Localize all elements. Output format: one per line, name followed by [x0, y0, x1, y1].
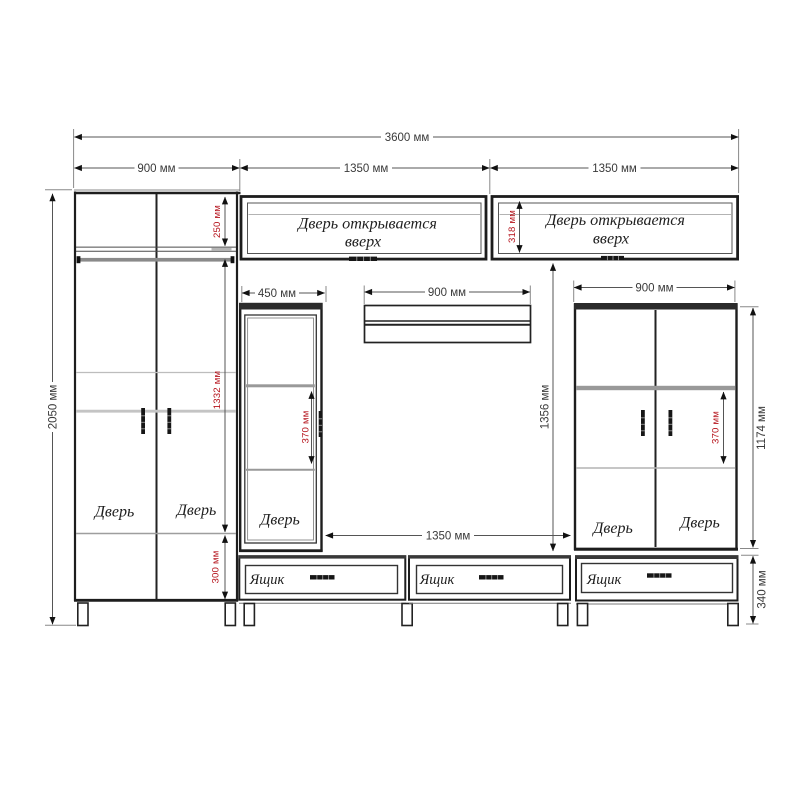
- svg-text:вверх: вверх: [345, 233, 382, 251]
- svg-text:370 мм: 370 мм: [711, 411, 722, 444]
- svg-text:318 мм: 318 мм: [507, 210, 518, 243]
- svg-text:1350 мм: 1350 мм: [592, 163, 637, 175]
- svg-text:3600 мм: 3600 мм: [385, 132, 430, 144]
- svg-text:Ящик: Ящик: [249, 572, 285, 588]
- svg-text:вверх: вверх: [593, 230, 630, 248]
- svg-text:Дверь: Дверь: [175, 502, 217, 519]
- svg-text:370 мм: 370 мм: [301, 410, 312, 443]
- svg-text:900 мм: 900 мм: [137, 163, 175, 175]
- svg-text:Дверь: Дверь: [258, 512, 300, 529]
- svg-text:1356 мм: 1356 мм: [540, 385, 552, 430]
- svg-text:Ящик: Ящик: [419, 572, 455, 588]
- svg-text:1174 мм: 1174 мм: [756, 406, 768, 450]
- svg-text:2050 мм: 2050 мм: [47, 385, 59, 430]
- svg-text:Ящик: Ящик: [586, 572, 622, 588]
- svg-text:450 мм: 450 мм: [258, 288, 296, 300]
- svg-text:300 мм: 300 мм: [211, 550, 222, 583]
- svg-text:900 мм: 900 мм: [428, 287, 466, 299]
- svg-text:1332 мм: 1332 мм: [212, 371, 223, 410]
- svg-text:Дверь открывается: Дверь открывается: [544, 211, 685, 229]
- svg-text:1350 мм: 1350 мм: [344, 163, 389, 175]
- svg-text:340 мм: 340 мм: [757, 570, 769, 608]
- svg-text:Дверь: Дверь: [678, 515, 720, 532]
- svg-text:1350 мм: 1350 мм: [426, 531, 471, 543]
- svg-text:Дверь: Дверь: [591, 520, 633, 537]
- svg-text:Дверь открывается: Дверь открывается: [296, 215, 437, 233]
- svg-text:900 мм: 900 мм: [635, 283, 673, 295]
- svg-text:250 мм: 250 мм: [212, 205, 223, 238]
- svg-text:Дверь: Дверь: [93, 504, 135, 521]
